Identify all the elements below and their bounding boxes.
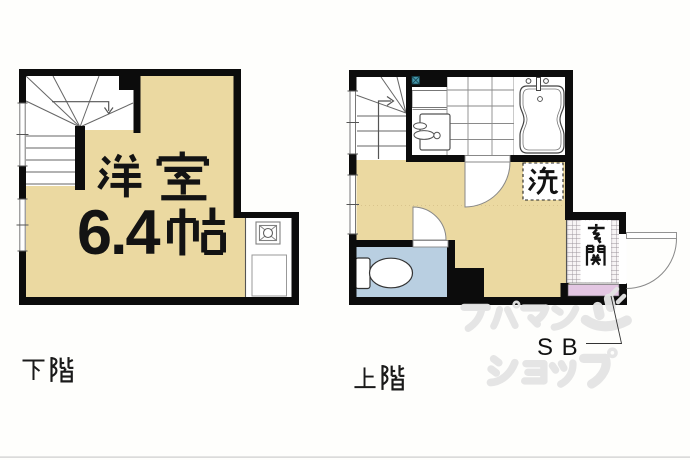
svg-text:S B: S B — [537, 334, 579, 361]
svg-text:6.4: 6.4 — [77, 198, 161, 268]
